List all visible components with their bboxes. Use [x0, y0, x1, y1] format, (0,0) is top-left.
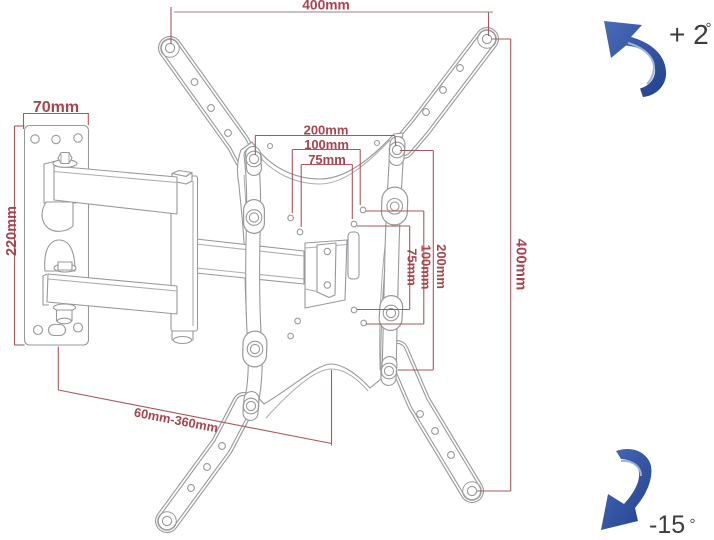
svg-text:100mm: 100mm — [419, 245, 434, 290]
svg-text:400mm: 400mm — [513, 239, 530, 291]
svg-text:°: ° — [690, 516, 696, 533]
svg-text:70mm: 70mm — [33, 99, 79, 116]
svg-text:°: ° — [706, 20, 712, 37]
svg-text:200mm: 200mm — [304, 122, 349, 137]
svg-text:100mm: 100mm — [304, 137, 349, 152]
svg-text:+ 2: + 2 — [669, 19, 709, 50]
svg-text:75mm: 75mm — [308, 152, 346, 167]
svg-text:60mm-360mm: 60mm-360mm — [133, 405, 220, 436]
svg-text:220mm: 220mm — [4, 206, 20, 256]
svg-text:400mm: 400mm — [302, 0, 350, 13]
svg-text:-15: -15 — [649, 511, 685, 539]
svg-text:75mm: 75mm — [405, 248, 420, 286]
svg-text:200mm: 200mm — [434, 244, 449, 289]
